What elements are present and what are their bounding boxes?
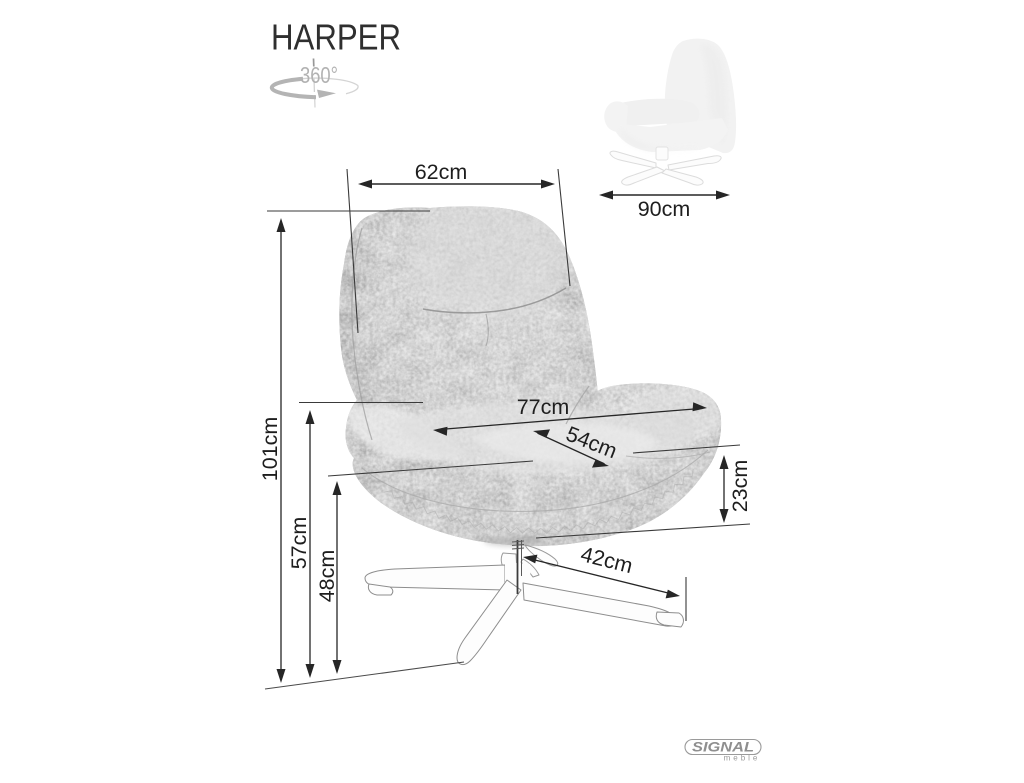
svg-text:62cm: 62cm <box>415 160 468 184</box>
svg-text:meble: meble <box>724 754 761 763</box>
svg-text:23cm: 23cm <box>728 460 752 513</box>
svg-text:57cm: 57cm <box>287 517 311 570</box>
svg-text:48cm: 48cm <box>315 550 339 603</box>
svg-text:360°: 360° <box>300 63 338 88</box>
svg-text:101cm: 101cm <box>258 417 282 482</box>
svg-text:SIGNAL: SIGNAL <box>692 740 754 755</box>
svg-text:HARPER: HARPER <box>271 17 401 58</box>
svg-text:90cm: 90cm <box>638 197 691 221</box>
svg-text:77cm: 77cm <box>517 395 570 419</box>
